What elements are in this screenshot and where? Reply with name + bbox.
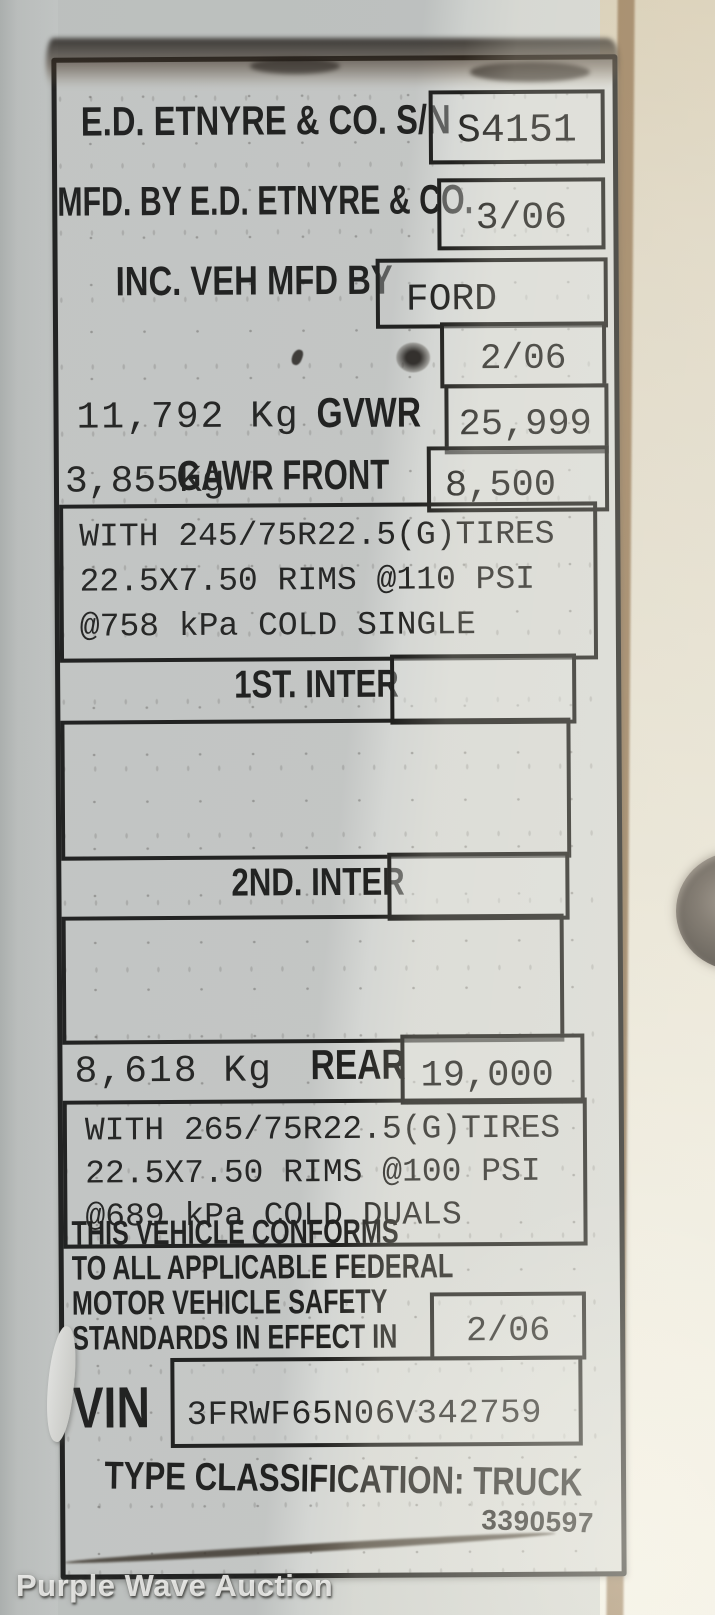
front-tires-line3: @758 kPa COLD SINGLE xyxy=(80,606,476,645)
certification-plate: E.D. ETNYRE & CO. S/N S4151 MFD. BY E.D.… xyxy=(51,54,626,1579)
mfd-date-box: 3/06 xyxy=(437,177,605,250)
auction-watermark: Purple Wave Auction xyxy=(16,1568,333,1604)
first-inter-empty-box xyxy=(60,718,571,861)
gvwr-metric: 11,792 Kg xyxy=(76,395,299,439)
gawr-rear-value: 19,000 xyxy=(420,1055,553,1098)
gawr-rear-metric: 8,618 Kg xyxy=(74,1049,273,1093)
inc-veh-make-value: FORD xyxy=(406,278,497,322)
serial-value-box: S4151 xyxy=(429,89,605,164)
front-tires-line2: 22.5X7.50 RIMS @110 PSI xyxy=(79,561,535,601)
ink-squiggle-stain xyxy=(290,348,305,366)
vin-value: 3FRWF65N06V342759 xyxy=(187,1395,543,1435)
vin-value-box: 3FRWF65N06V342759 xyxy=(170,1356,583,1449)
inc-veh-date-value: 2/06 xyxy=(480,337,567,379)
gawr-rear-value-box: 19,000 xyxy=(400,1034,584,1105)
truck-label-photo: E.D. ETNYRE & CO. S/N S4151 MFD. BY E.D.… xyxy=(0,0,715,1615)
mfd-date-value: 3/06 xyxy=(476,196,567,240)
inc-veh-date-box: 2/06 xyxy=(440,321,606,388)
second-inter-empty-box xyxy=(62,914,565,1045)
second-inter-value-box xyxy=(387,852,569,921)
front-tires-line1: WITH 245/75R22.5(G)TIRES xyxy=(79,516,554,556)
front-tires-box: WITH 245/75R22.5(G)TIRES 22.5X7.50 RIMS … xyxy=(59,501,598,662)
gvwr-value: 25,999 xyxy=(458,403,591,446)
conformity-date-box: 2/06 xyxy=(430,1292,586,1361)
rear-tires-line1: WITH 265/75R22.5(G)TIRES xyxy=(85,1110,560,1150)
dark-blotch-stain xyxy=(396,342,430,372)
rear-tires-line2: 22.5X7.50 RIMS @100 PSI xyxy=(85,1153,541,1193)
dirt-blob xyxy=(470,62,590,82)
serial-value: S4151 xyxy=(457,108,577,154)
conformity-date-value: 2/06 xyxy=(466,1311,550,1352)
gvwr-value-box: 25,999 xyxy=(444,383,608,454)
dirt-blob xyxy=(250,58,340,74)
first-inter-value-box xyxy=(390,654,576,725)
inc-veh-make-box: FORD xyxy=(376,257,608,328)
